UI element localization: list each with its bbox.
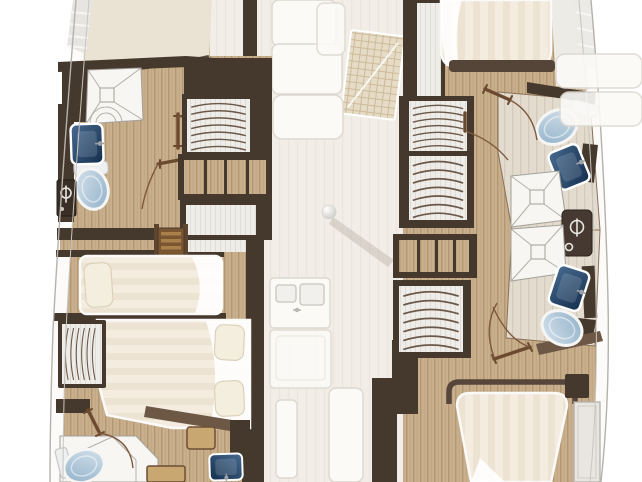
hanging-locker [182, 94, 256, 158]
galley-counter [270, 330, 331, 388]
vanity-cabinet [62, 66, 88, 122]
sink-basin [276, 285, 296, 302]
port-hull [50, 0, 272, 482]
side-steps [574, 402, 600, 482]
settee-back [317, 3, 345, 55]
floorplan [0, 0, 642, 482]
mast-step [322, 205, 336, 219]
pillow [214, 380, 245, 416]
deck-locker-ghost [556, 54, 642, 88]
hanging-locker [393, 280, 471, 358]
wall [56, 399, 90, 413]
cockpit-bench [276, 400, 297, 478]
deck-locker-ghost [560, 92, 642, 126]
hanging-locker [399, 96, 474, 228]
forward-berth-ghost [79, 0, 212, 66]
pillow [214, 324, 245, 360]
shelf-unit [393, 234, 477, 278]
shower-column-panel [562, 210, 592, 256]
pillow [83, 262, 113, 308]
sink-basin [300, 284, 324, 305]
single-berth [80, 256, 222, 314]
cockpit-bench [329, 388, 363, 482]
footboard [449, 60, 555, 72]
companionway-steps [154, 224, 188, 260]
galley [270, 278, 331, 388]
double-berth [441, 0, 555, 72]
shower [86, 68, 143, 124]
wall [184, 58, 272, 98]
washbasin [70, 123, 104, 164]
bench [147, 466, 185, 482]
shelf-unit [178, 154, 272, 200]
locker [180, 200, 272, 240]
shower [511, 171, 566, 227]
saloon-seat [273, 95, 343, 139]
ottoman [187, 427, 215, 449]
wall [242, 448, 260, 482]
wall [565, 374, 589, 398]
chart-table [341, 30, 405, 120]
washbasin [209, 453, 243, 481]
floorplan-canvas [0, 0, 642, 482]
